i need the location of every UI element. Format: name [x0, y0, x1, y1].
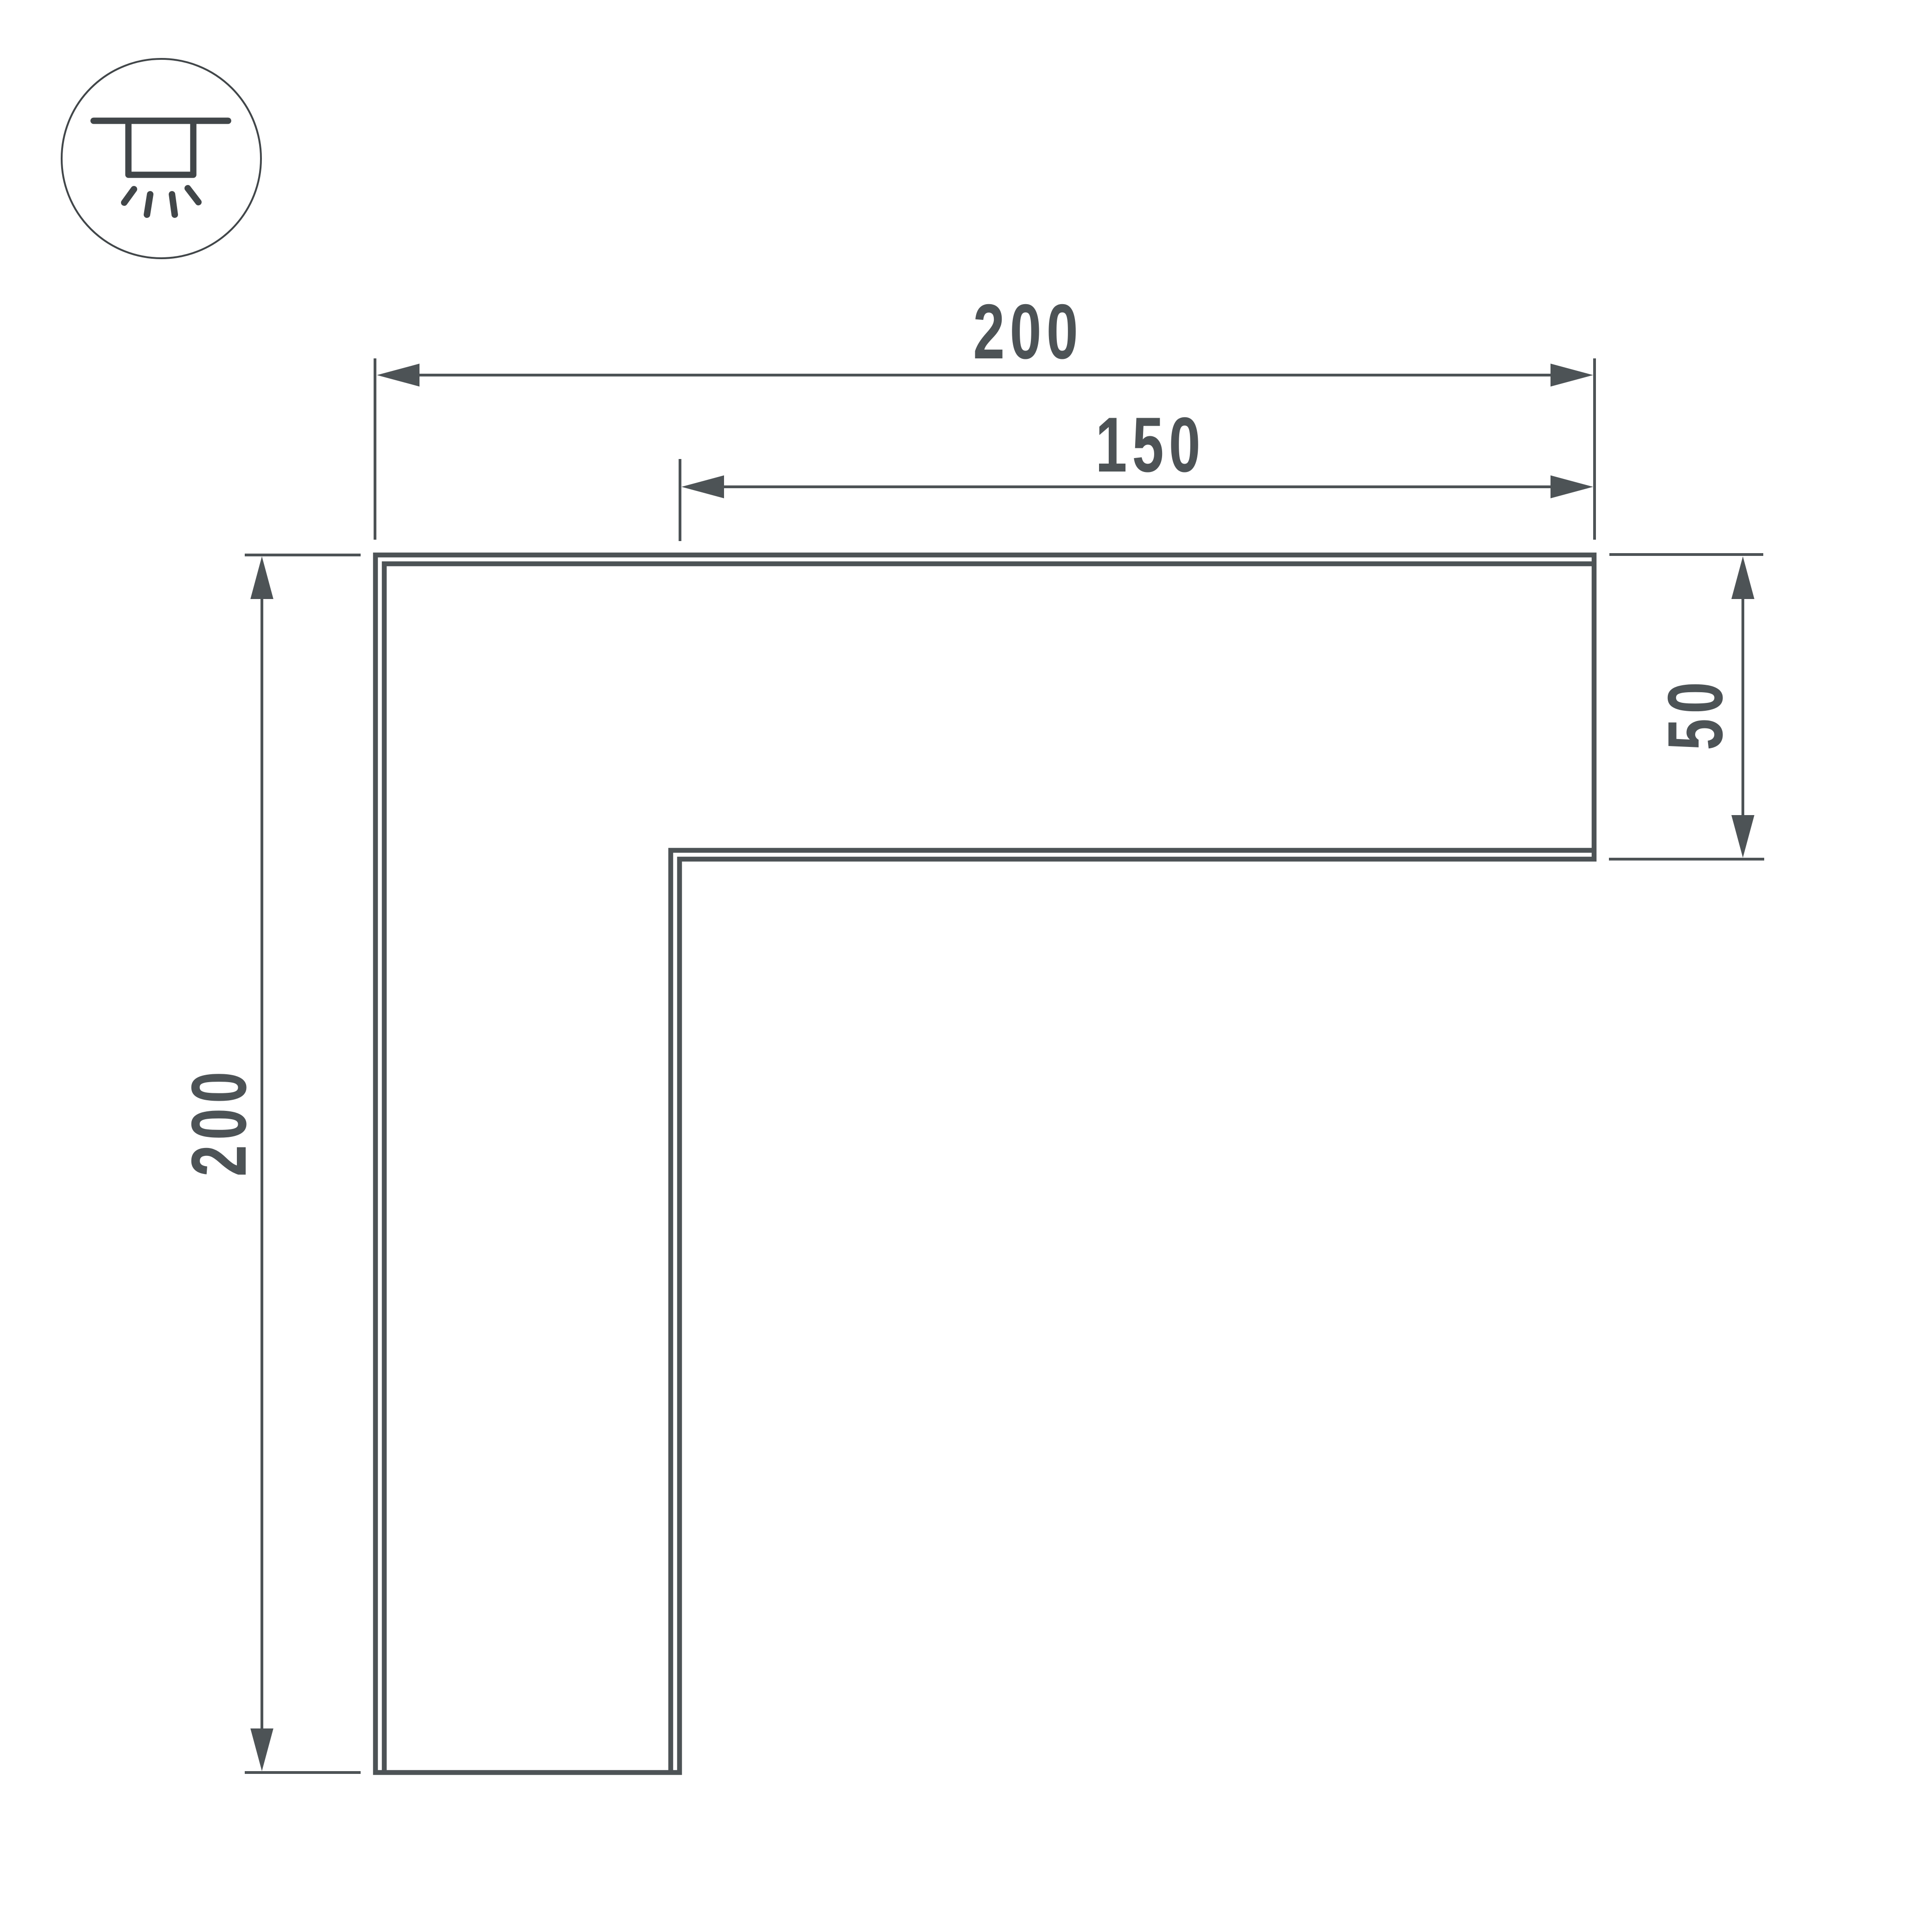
svg-text:200: 200: [973, 288, 1083, 375]
svg-text:50: 50: [1652, 677, 1739, 750]
svg-text:150: 150: [1095, 402, 1205, 488]
svg-text:200: 200: [176, 1066, 262, 1176]
